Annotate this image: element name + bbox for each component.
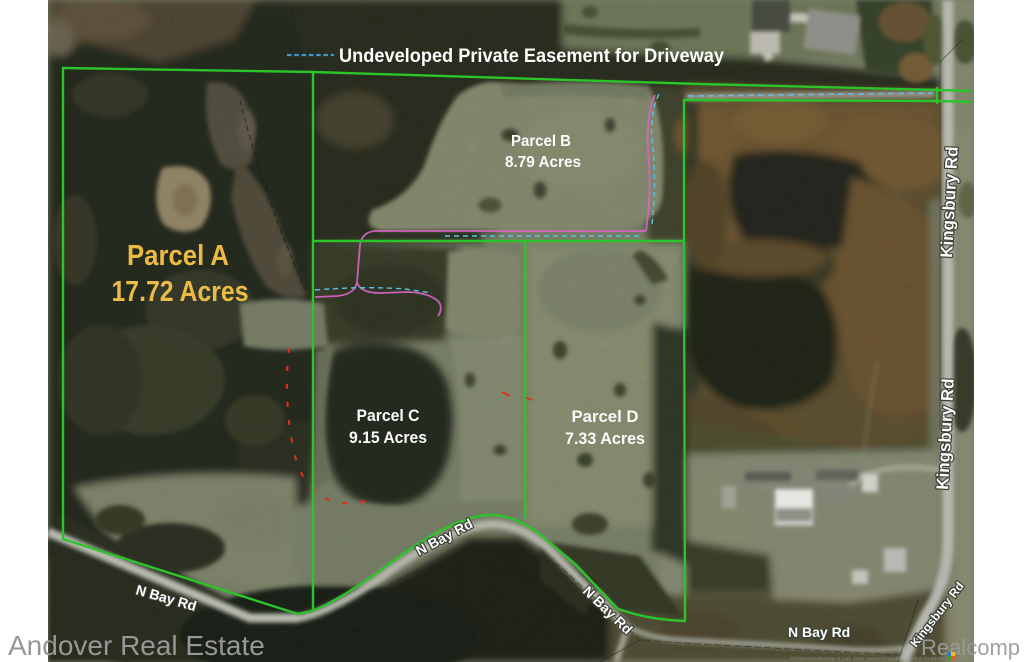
svg-text:7.33 Acres: 7.33 Acres	[565, 429, 645, 448]
svg-text:Parcel D: Parcel D	[572, 407, 639, 426]
svg-text:Parcel B: Parcel B	[511, 133, 571, 150]
svg-text:N Bay Rd: N Bay Rd	[788, 624, 850, 640]
svg-text:Parcel A: Parcel A	[127, 240, 229, 272]
svg-text:Parcel C: Parcel C	[357, 406, 420, 425]
svg-text:Andover Real Estate: Andover Real Estate	[8, 630, 265, 661]
svg-text:8.79 Acres: 8.79 Acres	[505, 154, 581, 171]
svg-text:Undeveloped Private Easement f: Undeveloped Private Easement for Drivewa…	[339, 46, 724, 67]
svg-text:©2023 Realcomp II Ltd. Geo Aer: ©2023 Realcomp II Ltd. Geo Aerial Imager…	[790, 655, 948, 661]
svg-text:9.15 Acres: 9.15 Acres	[349, 428, 427, 447]
svg-text:17.72 Acres: 17.72 Acres	[112, 276, 249, 308]
